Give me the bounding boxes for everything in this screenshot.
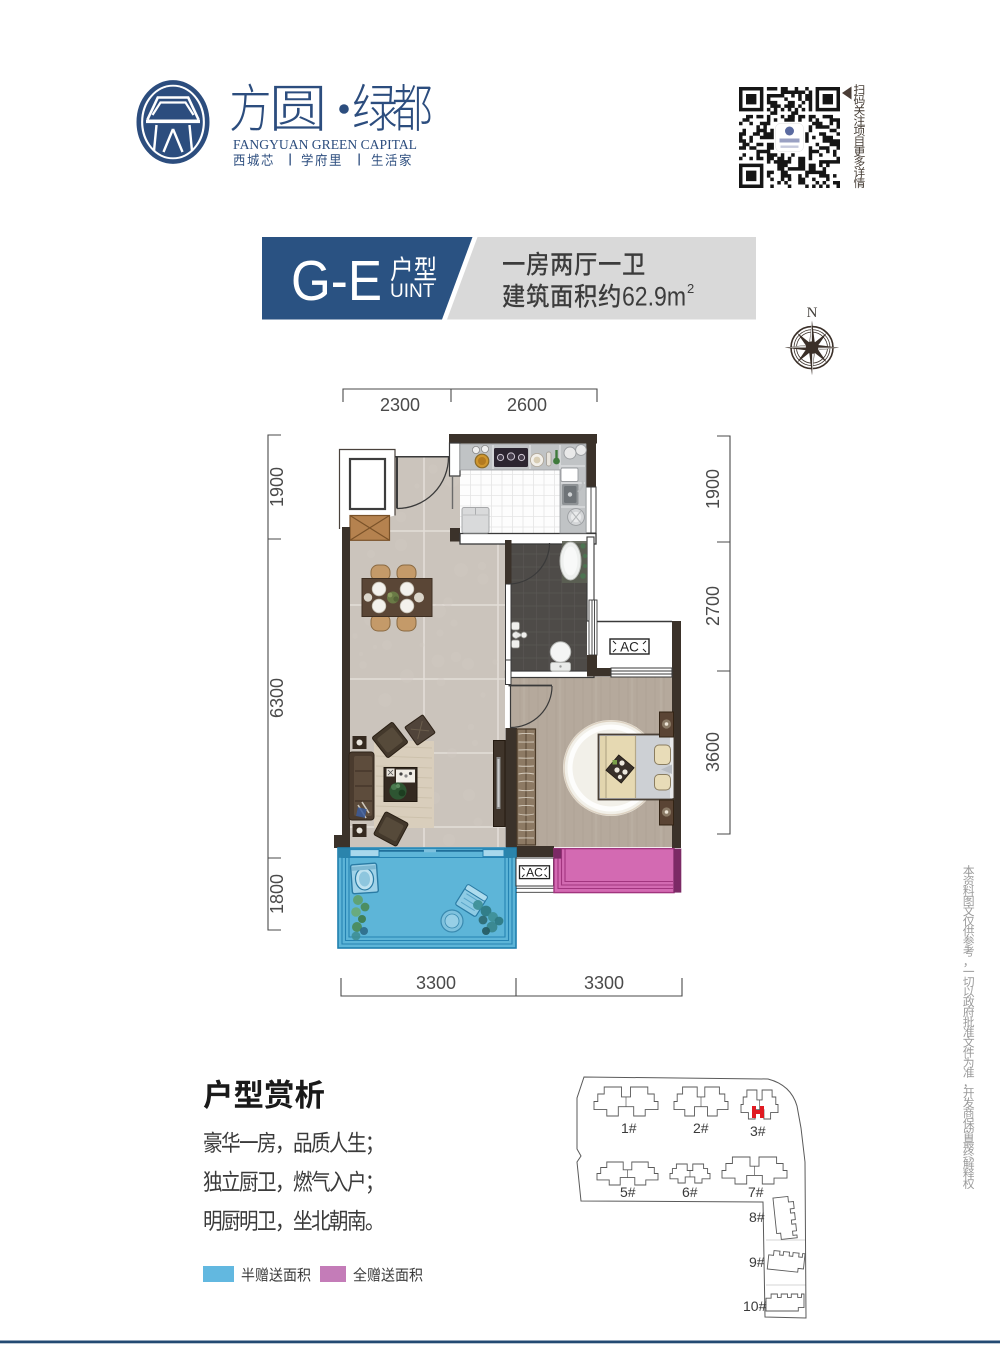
svg-text:2700: 2700 — [703, 586, 723, 626]
svg-text:1900: 1900 — [703, 469, 723, 509]
svg-text:3300: 3300 — [584, 973, 624, 993]
svg-text:3600: 3600 — [703, 732, 723, 772]
svg-text:2600: 2600 — [507, 395, 547, 415]
svg-text:1800: 1800 — [267, 874, 287, 914]
svg-text:G-E: G-E — [291, 249, 382, 313]
svg-text:UINT: UINT — [390, 281, 435, 302]
svg-text:62.9m: 62.9m — [622, 282, 686, 312]
svg-text:7#: 7# — [748, 1184, 764, 1200]
svg-text:5#: 5# — [620, 1184, 636, 1200]
svg-text:8#: 8# — [749, 1209, 765, 1225]
svg-text:1#: 1# — [621, 1120, 637, 1136]
svg-text:1900: 1900 — [267, 467, 287, 507]
svg-text:6#: 6# — [682, 1184, 698, 1200]
svg-text:6300: 6300 — [267, 678, 287, 718]
svg-text:AC: AC — [620, 640, 639, 655]
svg-text:AC: AC — [526, 866, 543, 880]
svg-text:2300: 2300 — [380, 395, 420, 415]
svg-text:2#: 2# — [693, 1120, 709, 1136]
svg-text:9#: 9# — [749, 1254, 765, 1270]
svg-text:FANGYUAN GREEN CAPITAL: FANGYUAN GREEN CAPITAL — [233, 138, 417, 153]
svg-text:3300: 3300 — [416, 973, 456, 993]
svg-text:10#: 10# — [743, 1298, 767, 1314]
svg-text:2: 2 — [687, 281, 694, 296]
svg-text:N: N — [807, 305, 818, 321]
svg-text:3#: 3# — [750, 1123, 766, 1139]
